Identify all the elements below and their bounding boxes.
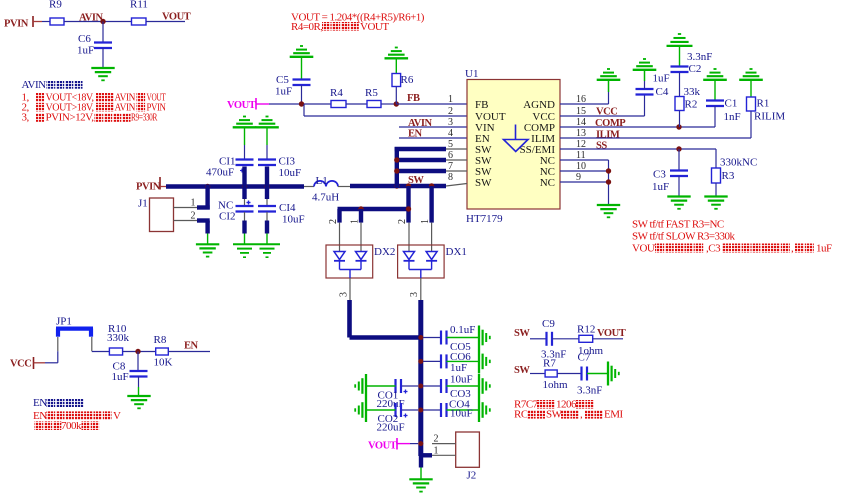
svg-text:AGND: AGND — [523, 99, 555, 111]
svg-text:1: 1 — [420, 219, 431, 224]
svg-text:12: 12 — [576, 139, 586, 150]
svg-text:VOUT: VOUT — [597, 328, 626, 339]
svg-text:1uF: 1uF — [112, 371, 129, 383]
svg-text:DX1: DX1 — [446, 246, 467, 258]
svg-text:1nF: 1nF — [724, 111, 741, 123]
svg-text:R9=330R: R9=330R — [131, 112, 158, 124]
svg-text:3.3nF: 3.3nF — [577, 385, 602, 397]
svg-text:EN: EN — [33, 410, 47, 422]
svg-text:PVIN>12V,: PVIN>12V, — [46, 112, 95, 124]
svg-text:1: 1 — [350, 219, 361, 224]
svg-text:4: 4 — [448, 128, 453, 139]
svg-text:6: 6 — [448, 150, 453, 161]
svg-text:16: 16 — [576, 94, 586, 105]
svg-text:C6: C6 — [78, 33, 91, 45]
svg-text:7: 7 — [448, 161, 453, 172]
svg-text:1uF: 1uF — [77, 45, 94, 57]
svg-text:1: 1 — [434, 446, 439, 457]
svg-text:11: 11 — [576, 150, 586, 161]
svg-text:RC: RC — [514, 409, 528, 421]
svg-text:SW: SW — [514, 328, 530, 339]
svg-text:1uF: 1uF — [450, 362, 467, 374]
svg-text:R4=0R,: R4=0R, — [291, 21, 323, 33]
svg-text:HT7179: HT7179 — [466, 213, 503, 225]
svg-text:L1: L1 — [316, 175, 328, 187]
svg-text:R12: R12 — [577, 324, 595, 336]
svg-text:,C3: ,C3 — [706, 243, 721, 255]
svg-text:5: 5 — [448, 139, 453, 150]
svg-text:1ohm: 1ohm — [543, 379, 569, 391]
svg-text:2: 2 — [191, 211, 196, 222]
svg-text:10: 10 — [576, 161, 586, 172]
svg-text:470uF: 470uF — [206, 167, 234, 179]
svg-text:700k: 700k — [61, 420, 82, 432]
svg-text:AVIN: AVIN — [79, 13, 104, 24]
svg-text:V: V — [113, 410, 121, 422]
svg-text:ILIM: ILIM — [596, 130, 620, 141]
svg-text:C5: C5 — [276, 74, 289, 86]
svg-text:CI2: CI2 — [219, 211, 236, 223]
svg-text:PVIN: PVIN — [4, 19, 29, 30]
svg-text:C2: C2 — [689, 63, 702, 75]
svg-text:CI3: CI3 — [279, 156, 296, 168]
svg-text:FB: FB — [475, 99, 488, 111]
svg-text:2: 2 — [448, 106, 453, 117]
svg-text:EN: EN — [184, 341, 199, 352]
svg-text:10K: 10K — [154, 357, 173, 369]
svg-text:10uF: 10uF — [282, 214, 305, 226]
svg-text:330k: 330k — [107, 332, 130, 344]
svg-text:1uF: 1uF — [275, 86, 292, 98]
svg-text:FB: FB — [407, 93, 420, 104]
svg-text:VCC: VCC — [10, 359, 31, 370]
svg-text:VOUT: VOUT — [360, 21, 389, 33]
svg-text:VOUT: VOUT — [227, 100, 256, 111]
svg-text:R8: R8 — [154, 334, 167, 346]
svg-text:SW tf/tf SLOW R3=330k: SW tf/tf SLOW R3=330k — [632, 231, 736, 243]
svg-text:3,: 3, — [22, 112, 30, 124]
svg-text:RILIM: RILIM — [754, 111, 785, 123]
svg-text:15: 15 — [576, 106, 586, 117]
svg-text:SW: SW — [408, 175, 424, 186]
svg-text:SS: SS — [596, 141, 607, 152]
svg-text:SW: SW — [546, 409, 563, 421]
svg-text:10uF: 10uF — [279, 167, 302, 179]
svg-text:C1: C1 — [725, 98, 738, 110]
svg-text:R11: R11 — [130, 0, 148, 11]
svg-text:EMI: EMI — [604, 409, 624, 421]
svg-text:3: 3 — [409, 292, 420, 297]
svg-text:R2: R2 — [685, 99, 698, 111]
svg-text:R4: R4 — [330, 87, 343, 99]
svg-text:33k: 33k — [684, 86, 701, 98]
svg-text:220uF: 220uF — [377, 422, 405, 434]
svg-text:330kNC: 330kNC — [720, 157, 757, 169]
svg-text:VOUT: VOUT — [368, 441, 397, 452]
svg-text:C9: C9 — [542, 318, 555, 330]
svg-text:10uF: 10uF — [450, 408, 473, 420]
svg-text:9: 9 — [576, 172, 581, 183]
svg-text:SW: SW — [514, 365, 530, 376]
svg-text:1uF: 1uF — [652, 181, 669, 193]
svg-text:10uF: 10uF — [450, 374, 473, 386]
svg-text:U1: U1 — [465, 68, 478, 80]
svg-text:C3: C3 — [653, 169, 666, 181]
svg-text:14: 14 — [576, 117, 586, 128]
svg-text:2: 2 — [434, 434, 439, 445]
svg-text:3: 3 — [448, 117, 453, 128]
svg-text:2: 2 — [328, 219, 339, 224]
svg-text:3.3nF: 3.3nF — [687, 51, 712, 63]
svg-text:AVIN: AVIN — [22, 79, 47, 91]
svg-text:13: 13 — [576, 128, 586, 139]
svg-text:SW: SW — [475, 177, 492, 189]
svg-text:CI4: CI4 — [279, 202, 296, 214]
svg-text:4.7uH: 4.7uH — [312, 192, 339, 204]
svg-text:R5: R5 — [365, 87, 378, 99]
svg-text:J2: J2 — [467, 470, 477, 482]
svg-text:R7: R7 — [543, 358, 556, 370]
svg-text:1uF: 1uF — [816, 243, 832, 255]
svg-text:3: 3 — [339, 292, 350, 297]
svg-text:J1: J1 — [138, 198, 148, 210]
svg-text:C7: C7 — [578, 352, 591, 364]
svg-text:1: 1 — [448, 94, 453, 105]
svg-text:R9: R9 — [49, 0, 62, 11]
svg-text:2: 2 — [397, 219, 408, 224]
svg-text:R1: R1 — [757, 98, 770, 110]
svg-text:EN: EN — [33, 397, 47, 409]
svg-text:NC: NC — [540, 177, 555, 189]
svg-text:0.1uF: 0.1uF — [450, 324, 475, 336]
svg-text:8: 8 — [448, 172, 453, 183]
svg-text:SW tf/tf FAST R3=NC: SW tf/tf FAST R3=NC — [632, 219, 724, 231]
svg-text:JP1: JP1 — [56, 316, 72, 328]
svg-text:PVIN: PVIN — [136, 182, 161, 193]
svg-text:1uF: 1uF — [653, 73, 670, 85]
svg-text:C4: C4 — [656, 86, 669, 98]
svg-text:R3: R3 — [722, 170, 735, 182]
svg-text:R6: R6 — [401, 74, 414, 86]
svg-text:DX2: DX2 — [374, 246, 395, 258]
svg-text:1: 1 — [191, 198, 196, 209]
svg-text:VOUT: VOUT — [162, 12, 191, 23]
